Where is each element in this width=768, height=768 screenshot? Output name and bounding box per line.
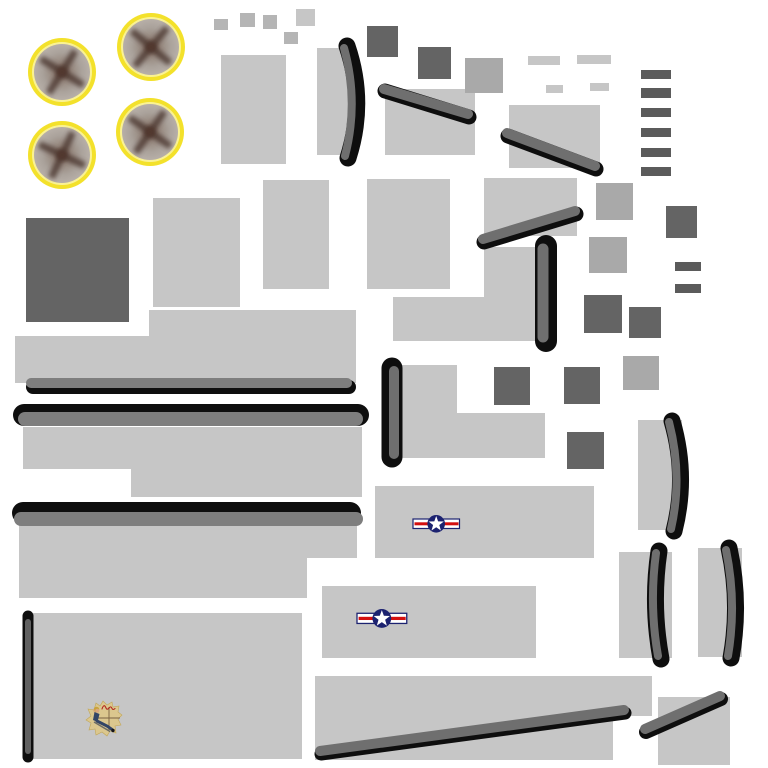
hub	[57, 67, 67, 77]
dark-dash	[641, 108, 671, 117]
medium-square	[623, 356, 659, 390]
dark-square-large	[26, 218, 129, 322]
dark-dash	[675, 284, 701, 293]
panel	[393, 297, 484, 341]
medium-square	[465, 58, 503, 93]
hub	[146, 42, 156, 52]
dark-square	[584, 295, 622, 333]
fuselage-panel-roundel	[375, 486, 594, 558]
dark-dash	[675, 262, 701, 271]
hub	[145, 127, 155, 137]
small-square	[240, 13, 255, 27]
dark-dash	[641, 70, 671, 79]
dark-square	[666, 206, 697, 238]
edge-strip-vertical	[392, 368, 394, 457]
medium-square	[596, 183, 633, 220]
panel	[131, 469, 362, 497]
edge-strip-vertical	[543, 246, 546, 341]
dark-dash	[641, 167, 671, 176]
panel	[367, 179, 450, 289]
panel	[149, 310, 356, 337]
girl-head	[95, 709, 99, 713]
edge-strip-curved	[653, 551, 661, 659]
light-dash	[577, 55, 611, 64]
girl-boot	[111, 729, 114, 732]
nose-art-panel	[33, 613, 302, 759]
hub	[57, 150, 67, 160]
panel	[15, 336, 356, 383]
propeller-disc	[28, 121, 96, 189]
fuselage-panel-roundel	[322, 586, 536, 658]
panel	[389, 413, 545, 458]
dark-square	[418, 47, 451, 79]
small-square	[214, 19, 228, 30]
edge-bar-horizontal	[31, 383, 349, 387]
dark-square	[567, 432, 604, 469]
panel	[221, 55, 286, 164]
dark-square	[629, 307, 661, 338]
dark-square	[494, 367, 530, 405]
dark-dash	[641, 88, 671, 98]
small-square	[263, 15, 277, 29]
panel	[153, 198, 240, 307]
light-dash	[528, 56, 560, 65]
dark-square	[367, 26, 398, 57]
edge-bar-horizontal	[24, 415, 358, 419]
texture-atlas-svg	[0, 0, 768, 768]
medium-square	[589, 237, 627, 273]
texture-atlas-canvas	[0, 0, 768, 768]
edge-bar-horizontal	[21, 513, 356, 519]
dark-square	[564, 367, 600, 404]
panel	[23, 427, 362, 469]
panel	[19, 558, 307, 598]
dark-dash	[641, 128, 671, 137]
small-square	[296, 9, 315, 26]
light-dash	[546, 85, 563, 93]
panel	[19, 525, 357, 558]
edge-strip-curved	[726, 548, 736, 658]
light-dash	[590, 83, 609, 91]
panel	[484, 247, 540, 341]
dark-dash	[641, 148, 671, 157]
panel	[263, 180, 329, 289]
small-square	[284, 32, 298, 44]
